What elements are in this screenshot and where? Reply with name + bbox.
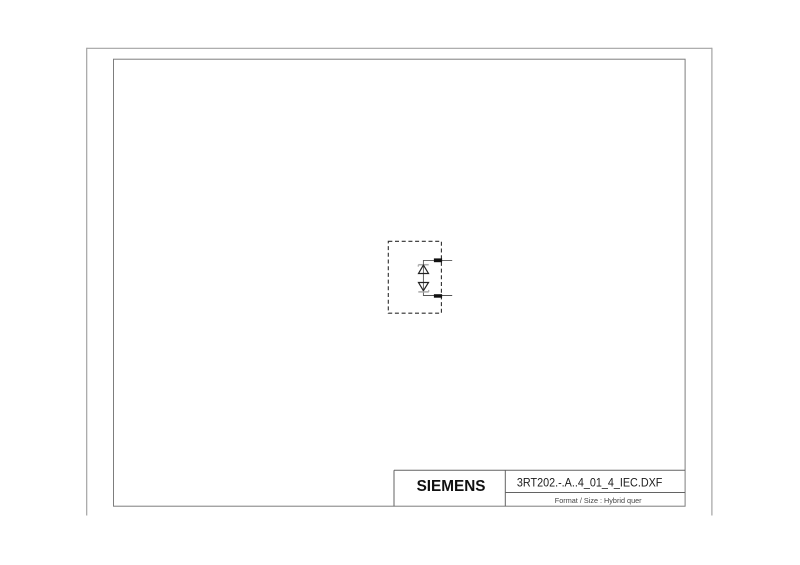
svg-text:Format / Size : Hybrid quer: Format / Size : Hybrid quer [555,496,642,505]
svg-text:3RT202.-.A..4_01_4_IEC.DXF: 3RT202.-.A..4_01_4_IEC.DXF [517,476,663,490]
svg-text:SIEMENS: SIEMENS [417,478,486,495]
